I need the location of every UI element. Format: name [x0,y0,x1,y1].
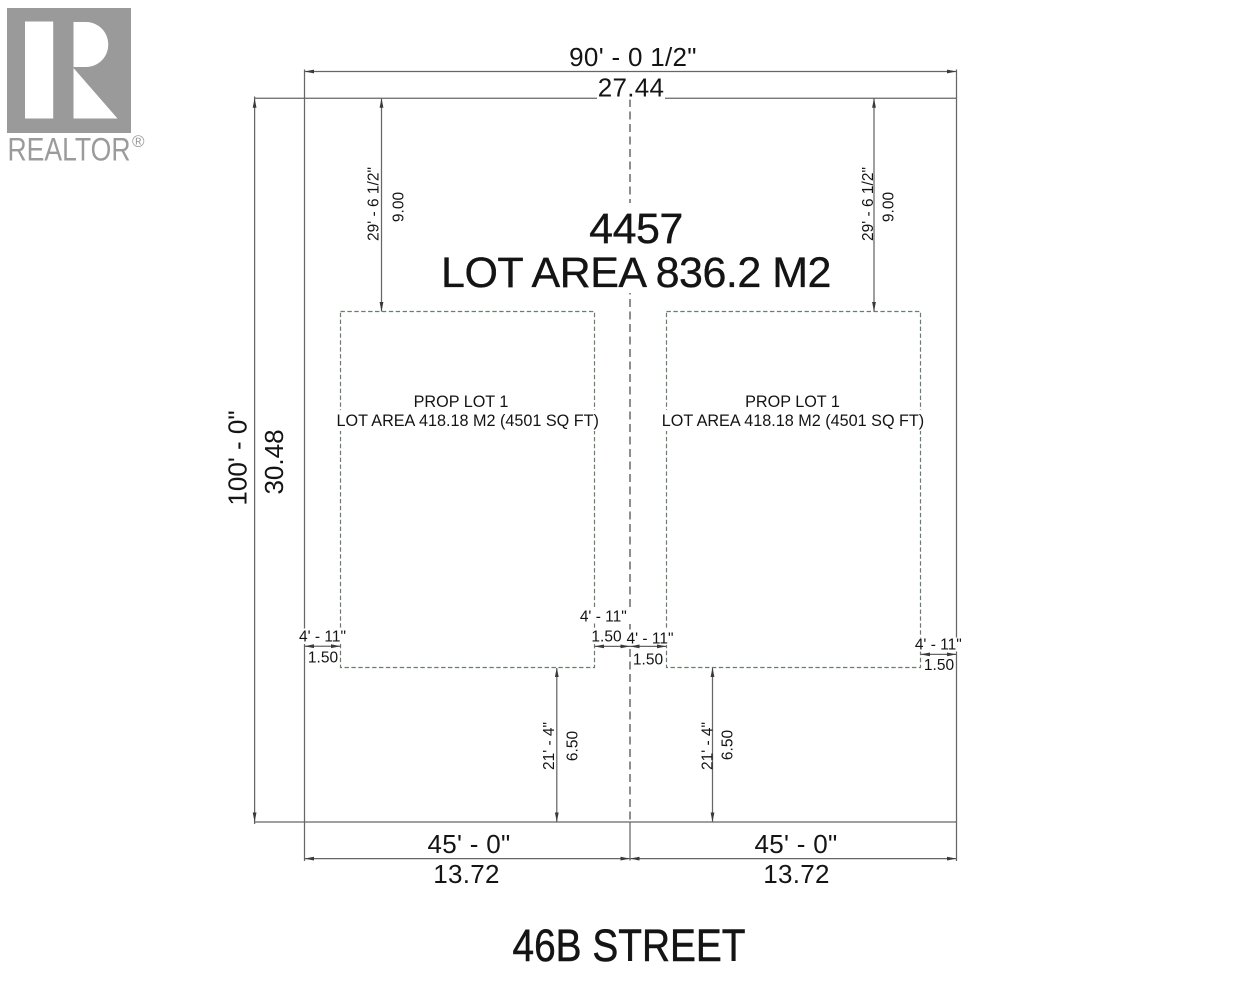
svg-text:1.50: 1.50 [591,629,622,646]
svg-text:45' - 0": 45' - 0" [754,829,837,859]
svg-text:4' - 11": 4' - 11" [580,608,627,625]
svg-text:45' - 0": 45' - 0" [427,829,510,859]
svg-text:46B STREET: 46B STREET [513,920,746,971]
svg-text:4' - 11": 4' - 11" [915,637,962,654]
svg-text:6.50: 6.50 [564,731,581,762]
svg-text:21' - 4": 21' - 4" [541,722,558,770]
svg-text:9.00: 9.00 [390,192,407,223]
svg-text:LOT AREA 418.18 M2 (4501 SQ FT: LOT AREA 418.18 M2 (4501 SQ FT) [336,412,598,430]
svg-text:13.72: 13.72 [433,859,500,889]
svg-text:REALTOR: REALTOR [8,132,131,168]
svg-text:30.48: 30.48 [259,429,289,494]
svg-text:27.44: 27.44 [598,73,665,103]
svg-text:PROP LOT 1: PROP LOT 1 [414,393,509,411]
svg-text:4' - 11": 4' - 11" [627,630,674,647]
svg-text:90' - 0 1/2": 90' - 0 1/2" [569,42,697,72]
svg-text:13.72: 13.72 [763,859,830,889]
svg-text:6.50: 6.50 [719,730,736,761]
svg-text:29' - 6 1/2": 29' - 6 1/2" [860,167,877,241]
svg-text:4' - 11": 4' - 11" [299,629,346,646]
svg-text:1.50: 1.50 [308,649,339,666]
svg-text:100' - 0": 100' - 0" [223,410,253,505]
svg-text:4457: 4457 [589,205,683,253]
svg-text:9.00: 9.00 [880,192,897,223]
svg-text:1.50: 1.50 [924,657,955,674]
svg-text:PROP LOT 1: PROP LOT 1 [745,393,840,411]
svg-text:LOT AREA 836.2 M2: LOT AREA 836.2 M2 [441,249,831,297]
svg-text:29' - 6 1/2": 29' - 6 1/2" [365,167,382,241]
svg-text:LOT AREA 418.18 M2 (4501 SQ FT: LOT AREA 418.18 M2 (4501 SQ FT) [662,412,924,430]
svg-text:®: ® [132,132,145,151]
svg-text:21' - 4": 21' - 4" [699,722,716,770]
svg-text:1.50: 1.50 [633,651,664,668]
